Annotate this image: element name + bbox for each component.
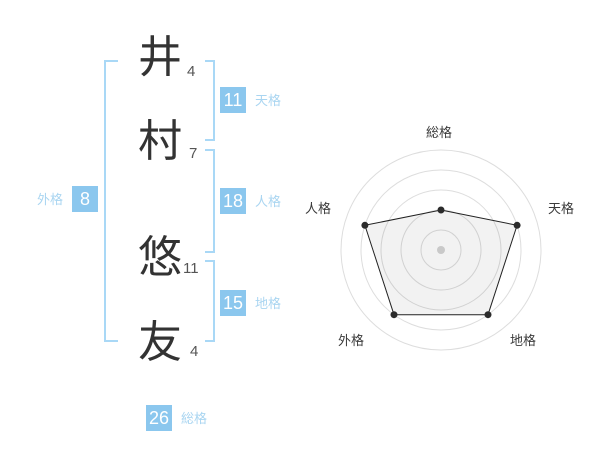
jinkaku-label: 人格 bbox=[255, 195, 281, 208]
radar-data-polygon bbox=[361, 207, 520, 319]
name-char-1: 井 bbox=[137, 36, 183, 80]
radar-chart: 総格 天格 地格 外格 人格 bbox=[301, 110, 581, 390]
stroke-count-3: 11 bbox=[183, 261, 199, 276]
radar-axis-label-tenkaku: 天格 bbox=[548, 201, 574, 216]
radar-axis-label-chikaku: 地格 bbox=[510, 333, 536, 348]
gaikaku-bracket bbox=[104, 60, 118, 342]
gaikaku-value-badge: 8 bbox=[72, 186, 98, 212]
soukaku-value-badge: 26 bbox=[146, 405, 172, 431]
chikaku-label: 地格 bbox=[255, 297, 281, 310]
tenkaku-group: 11 天格 bbox=[220, 87, 281, 113]
soukaku-label: 総格 bbox=[181, 412, 207, 425]
soukaku-group: 26 総格 bbox=[146, 405, 207, 431]
chikaku-value-badge: 15 bbox=[220, 290, 246, 316]
radar-axis-label-soukaku: 総格 bbox=[426, 125, 452, 140]
jinkaku-value-badge: 18 bbox=[220, 188, 246, 214]
chikaku-bracket bbox=[205, 260, 215, 342]
stroke-count-4: 4 bbox=[190, 344, 198, 359]
gaikaku-label: 外格 bbox=[37, 193, 63, 206]
gaikaku-group: 外格 8 bbox=[37, 186, 98, 212]
name-char-2: 村 bbox=[137, 120, 183, 164]
name-char-4: 友 bbox=[137, 321, 183, 365]
name-char-3: 悠 bbox=[137, 236, 183, 280]
tenkaku-bracket bbox=[205, 60, 215, 141]
tenkaku-label: 天格 bbox=[255, 94, 281, 107]
name-fortune-panel: 井 村 悠 友 4 7 11 4 11 天格 18 人格 15 地格 外格 8 … bbox=[0, 0, 600, 470]
stroke-count-2: 7 bbox=[189, 146, 197, 161]
radar-axis-label-jinkaku: 人格 bbox=[305, 201, 331, 216]
jinkaku-group: 18 人格 bbox=[220, 188, 281, 214]
stroke-count-1: 4 bbox=[187, 64, 195, 79]
chikaku-group: 15 地格 bbox=[220, 290, 281, 316]
jinkaku-bracket bbox=[205, 149, 215, 253]
tenkaku-value-badge: 11 bbox=[220, 87, 246, 113]
radar-axis-label-gaikaku: 外格 bbox=[338, 333, 364, 348]
